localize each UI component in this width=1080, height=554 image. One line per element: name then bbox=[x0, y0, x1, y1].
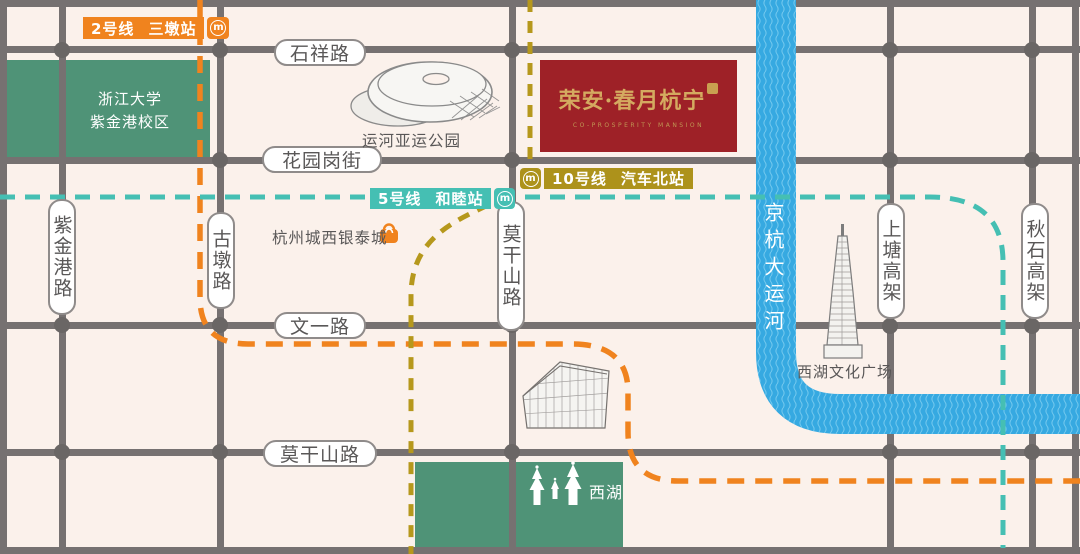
road-label-wenyi: 文一路 bbox=[274, 312, 366, 339]
west-lake-green-area-left bbox=[415, 462, 509, 554]
line-number: 5号线 bbox=[378, 188, 421, 209]
poi-yintai-mall: 杭州城西银泰城 bbox=[272, 226, 388, 248]
poi-canal-asian-games-park: 运河亚运公园 bbox=[362, 129, 461, 151]
station-name: 和睦站 bbox=[435, 188, 483, 209]
building-sketch bbox=[520, 360, 610, 430]
road-label-text: 上塘高架 bbox=[878, 219, 905, 303]
road-label-text: 莫干山路 bbox=[498, 224, 525, 308]
line-number: 10号线 bbox=[552, 168, 607, 189]
road-label-text: 紫金港路 bbox=[49, 215, 76, 299]
road-top-edge bbox=[0, 0, 1080, 7]
metro-badge-line10-text: 10号线 汽车北站 bbox=[544, 168, 693, 189]
poi-west-lake-culture-square: 西湖文化广场 bbox=[797, 361, 893, 382]
culture-square-tower-sketch bbox=[820, 224, 870, 358]
project-banner: 荣安·春月杭宁 CO-PROSPERITY MANSION bbox=[540, 60, 737, 152]
road-bottom-edge bbox=[0, 547, 1080, 554]
station-name: 三墩站 bbox=[148, 18, 196, 39]
asian-games-park-stadium-sketch bbox=[351, 62, 500, 126]
metro-badge-line10: m 10号线 汽车北站 bbox=[520, 168, 693, 189]
campus-label-line1: 浙江大学 bbox=[58, 88, 202, 111]
road-label-zijingang: 紫金港路 bbox=[48, 199, 76, 315]
project-seal-icon bbox=[707, 83, 718, 94]
road-right-edge bbox=[1072, 0, 1079, 554]
road-label-gudun: 古墩路 bbox=[207, 212, 235, 309]
road-label-text: 石祥路 bbox=[290, 39, 350, 66]
west-lake-label: 西湖 bbox=[589, 479, 623, 503]
project-title-text: 荣安·春月杭宁 bbox=[559, 88, 706, 114]
road-label-text: 秋石高架 bbox=[1022, 219, 1049, 303]
metro-logo-glyph: m bbox=[210, 20, 226, 36]
road-shixiang bbox=[0, 46, 1080, 53]
metro-logo-glyph: m bbox=[523, 171, 539, 187]
campus-label-line2: 紫金港校区 bbox=[58, 111, 202, 134]
road-moganshan-horizontal bbox=[0, 449, 1080, 456]
metro-badge-line5-text: 5号线 和睦站 bbox=[370, 188, 491, 209]
metro-badge-line2: 2号线 三墩站 m bbox=[83, 17, 229, 39]
station-name: 汽车北站 bbox=[621, 168, 685, 189]
metro-logo-icon: m bbox=[207, 17, 229, 39]
road-wenyi bbox=[0, 322, 1080, 329]
location-map: 石祥路 花园岗街 文一路 莫干山路 紫金港路 古墩路 莫干山路 上塘高架 秋石高… bbox=[0, 0, 1080, 554]
road-label-text: 古墩路 bbox=[208, 229, 235, 292]
west-lake-green-area-right bbox=[516, 462, 623, 554]
road-label-text: 花园岗街 bbox=[282, 146, 362, 173]
road-label-text: 文一路 bbox=[290, 312, 350, 339]
road-label-shangtang: 上塘高架 bbox=[877, 203, 905, 319]
road-label-moganshan-h: 莫干山路 bbox=[263, 440, 377, 467]
road-label-moganshan-v: 莫干山路 bbox=[497, 201, 525, 331]
line-number: 2号线 bbox=[91, 18, 134, 39]
grand-canal-label: 京杭大运河 bbox=[764, 202, 788, 337]
project-subtitle: CO-PROSPERITY MANSION bbox=[573, 122, 704, 129]
project-title: 荣安·春月杭宁 bbox=[559, 83, 719, 115]
metro-logo-icon: m bbox=[520, 168, 541, 189]
metro-badge-line2-text: 2号线 三墩站 bbox=[83, 17, 204, 39]
campus-label: 浙江大学 紫金港校区 bbox=[58, 88, 202, 133]
road-label-shixiang: 石祥路 bbox=[274, 39, 366, 66]
metro-badge-line5: 5号线 和睦站 m bbox=[370, 188, 515, 209]
metro-logo-glyph: m bbox=[497, 191, 513, 207]
road-huayuangang bbox=[0, 157, 1080, 164]
road-left-edge bbox=[0, 0, 7, 554]
metro-logo-icon: m bbox=[494, 188, 515, 209]
road-label-qiushi: 秋石高架 bbox=[1021, 203, 1049, 319]
road-label-text: 莫干山路 bbox=[280, 440, 360, 467]
